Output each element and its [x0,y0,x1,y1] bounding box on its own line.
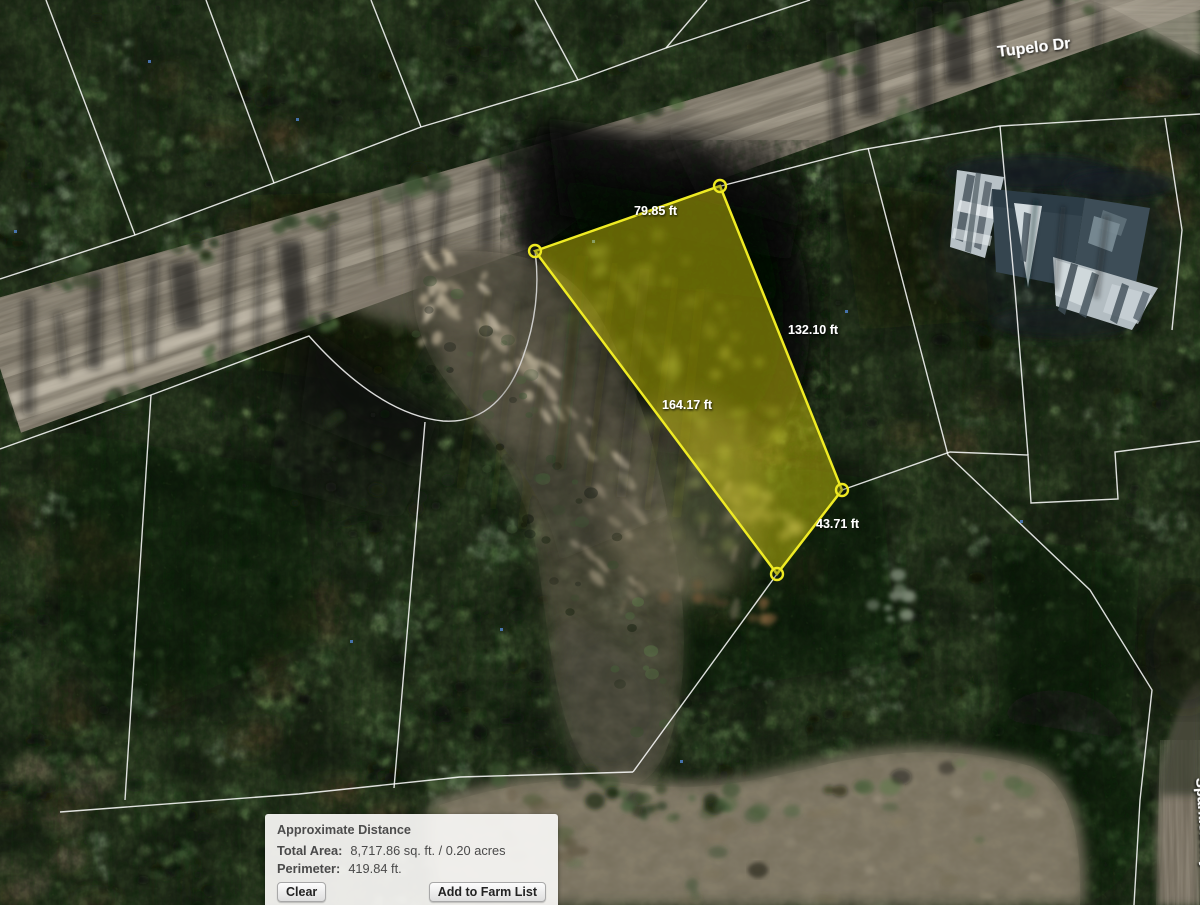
svg-text:132.10 ft: 132.10 ft [788,323,839,337]
svg-text:79.85 ft: 79.85 ft [634,204,678,218]
svg-text:43.71 ft: 43.71 ft [816,517,860,531]
svg-text:164.17 ft: 164.17 ft [662,398,713,412]
